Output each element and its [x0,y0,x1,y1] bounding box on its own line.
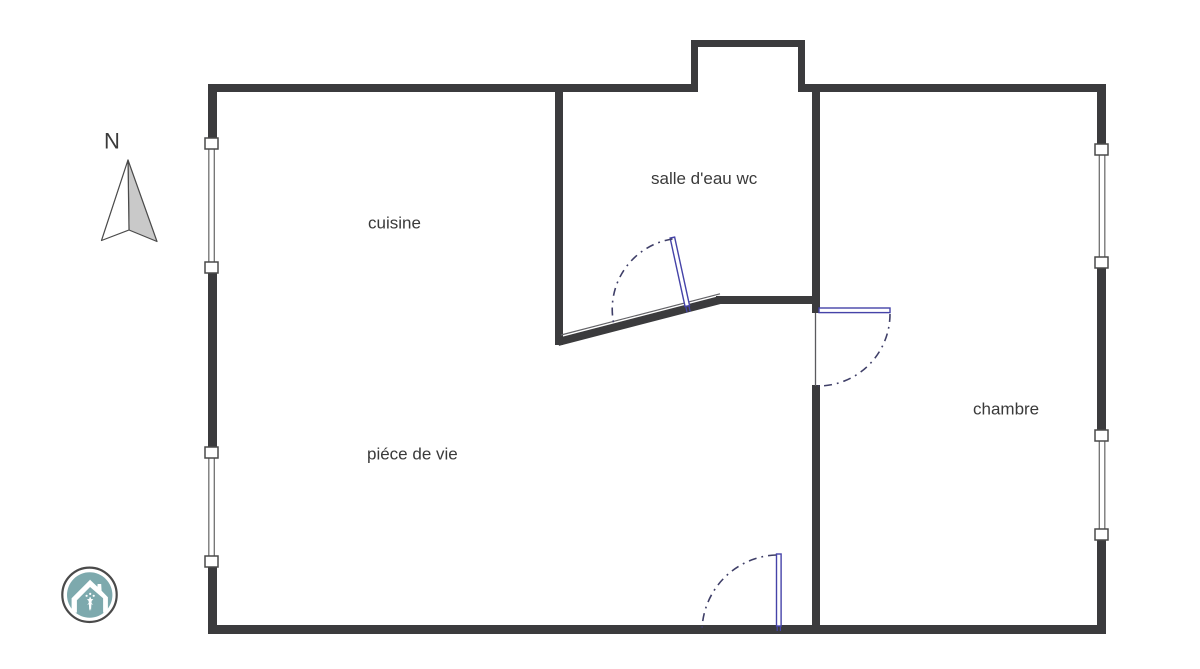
svg-text:N: N [104,129,120,154]
svg-text:cuisine: cuisine [368,214,421,233]
svg-text:chambre: chambre [973,400,1039,419]
svg-text:salle d'eau wc: salle d'eau wc [651,169,758,188]
svg-text:piéce de vie: piéce de vie [367,445,458,464]
